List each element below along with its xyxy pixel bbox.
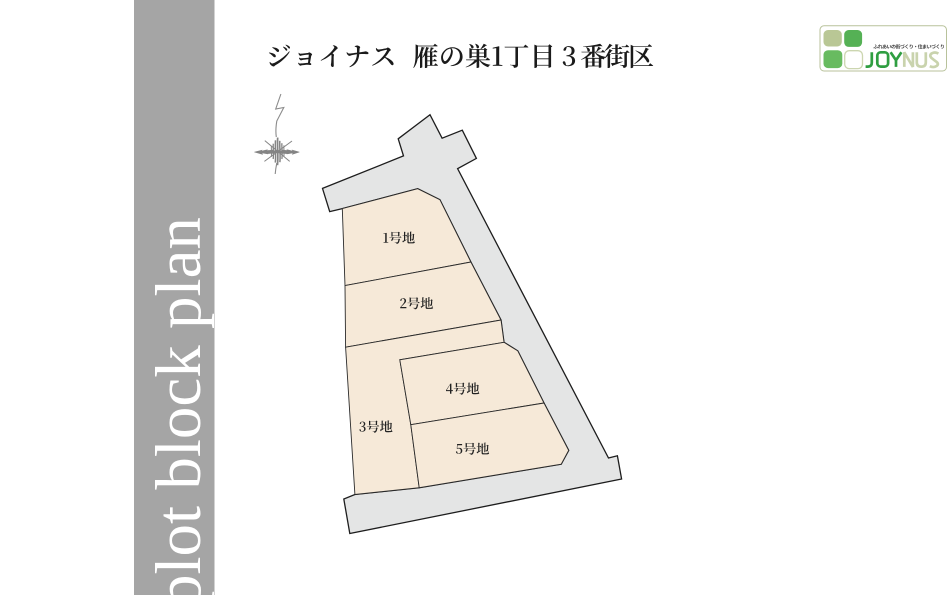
svg-text:plot block plan: plot block plan — [143, 217, 215, 595]
